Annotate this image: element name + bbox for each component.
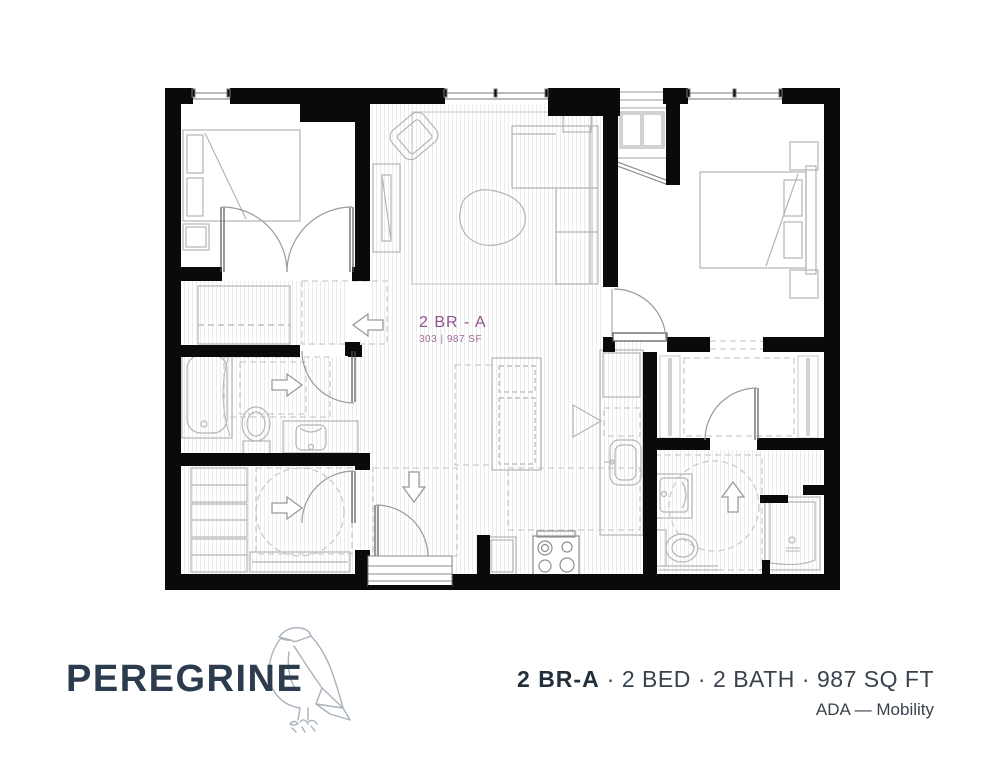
unit-summary-line: 2 BR-A·2 BED·2 BATH·987 SQ FT (517, 666, 934, 693)
bed-2 (700, 166, 816, 274)
unit-label-group: 2 BR - A 303 | 987 SF (419, 314, 487, 345)
entry-steps (368, 556, 452, 590)
unit-summary: 2 BR-A·2 BED·2 BATH·987 SQ FT ADA — Mobi… (517, 666, 934, 720)
stove (533, 531, 579, 575)
separator-dot: · (607, 666, 615, 692)
spec-beds: 2 BED (622, 666, 691, 692)
bed-1 (183, 130, 300, 221)
separator-dot: · (698, 666, 706, 692)
hall-floor (181, 281, 345, 345)
laundry-niche-back (620, 92, 663, 100)
unit-label: 2 BR - A (419, 314, 487, 331)
window-2 (444, 89, 548, 99)
spec-baths: 2 BATH (713, 666, 795, 692)
unit-meta: 303 | 987 SF (419, 334, 482, 345)
clearance-closet-2 (684, 358, 794, 436)
unit-name: 2 BR-A (517, 666, 600, 692)
bedroom-1-double-doors (221, 207, 353, 272)
washer-dryer (612, 108, 668, 184)
brand-logo-text: PEREGRINE (66, 658, 303, 701)
spec-area: 987 SQ FT (817, 666, 934, 692)
floor-plan: 2 BR - A 303 | 987 SF (0, 0, 994, 768)
bedroom-2-door (612, 289, 667, 341)
bathroom-1-floor (181, 357, 358, 453)
floor-plan-page: { "floor_plan": { "unit_label": "2 BR - … (0, 0, 994, 768)
ada-note: ADA — Mobility (517, 700, 934, 720)
closet-2-door (705, 388, 758, 440)
separator-dot: · (802, 666, 810, 692)
nightstand-1 (183, 224, 209, 250)
window-1 (192, 89, 230, 99)
living-room-floor (370, 104, 603, 340)
window-3 (687, 89, 782, 99)
cased-opening-dashes (710, 341, 763, 349)
